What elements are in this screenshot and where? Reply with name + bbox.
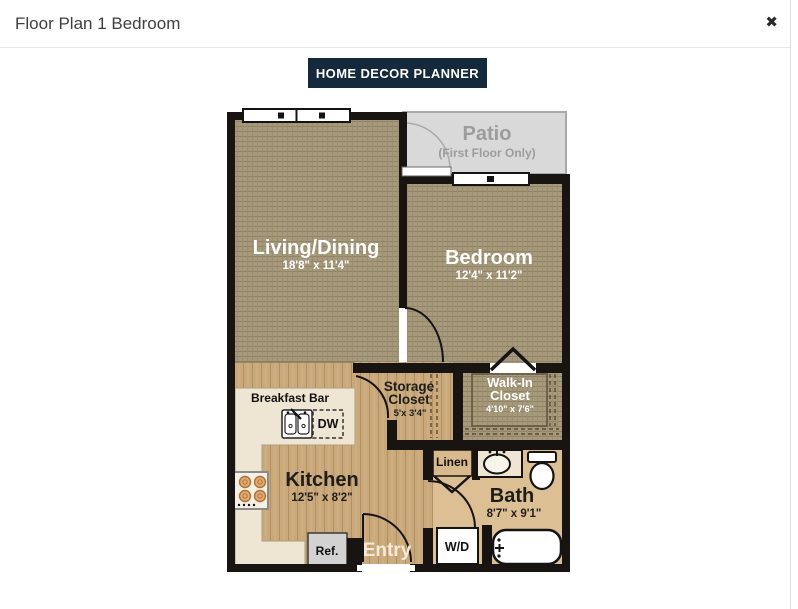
refrigerator: Ref. (308, 533, 347, 568)
patio-note: (First Floor Only) (438, 146, 535, 160)
modal-header: Floor Plan 1 Bedroom ✖ (0, 0, 790, 48)
living-room-window (243, 109, 350, 122)
bedroom-dims: 12'4" x 11'2" (456, 270, 523, 282)
storage-closet-dims: 5'x 3'4" (394, 408, 427, 419)
entry-label: Entry (363, 540, 412, 561)
home-decor-planner-button[interactable]: HOME DECOR PLANNER (308, 58, 487, 88)
patio-label: Patio (463, 123, 512, 145)
refrigerator-label: Ref. (316, 544, 339, 558)
bath-dims: 8'7" x 9'1" (487, 508, 542, 520)
bedroom-window (453, 173, 529, 185)
breakfast-bar-label: Breakfast Bar (251, 391, 329, 405)
entry-jamb-right (410, 565, 415, 571)
kitchen-label: Kitchen (285, 469, 358, 491)
walkin-closet-label-2: Closet (490, 388, 530, 403)
entry-jamb-left (357, 565, 362, 571)
patio-door (402, 167, 451, 176)
dishwasher-label: DW (318, 417, 339, 431)
bedroom-label: Bedroom (445, 247, 533, 269)
stove (233, 472, 268, 509)
living-room-label: Living/Dining (253, 237, 380, 259)
vanity-sink (477, 449, 522, 477)
kitchen-dims: 12'5" x 8'2" (291, 492, 352, 504)
walkin-closet-dims: 4'10" x 7'6" (486, 404, 534, 414)
bath-label: Bath (490, 485, 534, 507)
washer-dryer-label: W/D (445, 540, 469, 554)
kitchen-sink (282, 409, 312, 438)
storage-closet-label-2: Closet (388, 392, 430, 407)
washer-dryer: W/D (437, 528, 478, 564)
bathtub (493, 530, 561, 564)
floor-plan-image: Patio (First Floor Only) DW (225, 104, 573, 582)
close-button[interactable]: ✖ (765, 13, 778, 31)
modal-title: Floor Plan 1 Bedroom (15, 14, 180, 34)
living-room-dims: 18'8" x 11'4" (283, 260, 350, 272)
patio-area: Patio (First Floor Only) (403, 112, 566, 174)
toilet (528, 452, 556, 489)
linen-closet: Linen (433, 450, 472, 476)
linen-label: Linen (436, 455, 468, 469)
floor-plan-modal: Floor Plan 1 Bedroom ✖ HOME DECOR PLANNE… (0, 0, 791, 609)
